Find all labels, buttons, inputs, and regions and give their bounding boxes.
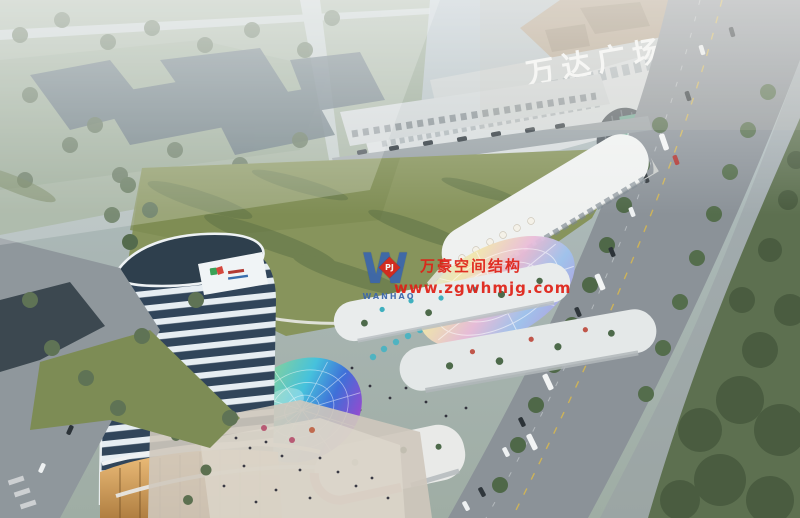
watermark-diamond-letters: PJ	[385, 263, 394, 272]
haze-overlay	[0, 0, 800, 245]
watermark-company: 万豪空间结构	[420, 256, 571, 277]
watermark-text: 万豪空间结构 www.zgwhmjg.com	[420, 252, 571, 312]
rendering-image: 万达广场	[0, 0, 800, 518]
watermark: W PJ WANHAO 万豪空间结构 www.zgwhmjg.com	[358, 252, 578, 312]
watermark-logo: W PJ WANHAO	[358, 252, 420, 308]
watermark-url: www.zgwhmjg.com	[394, 277, 571, 300]
watermark-brand: WANHAO	[358, 292, 420, 301]
